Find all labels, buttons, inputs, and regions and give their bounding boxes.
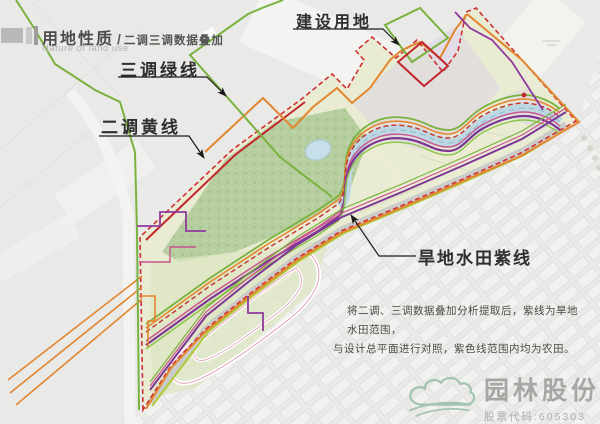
stock-code: 股票代码:605303 bbox=[484, 409, 600, 424]
annotation-line-1: 将二调、三调数据叠加分析提取后，紫线为旱地水田范围， bbox=[333, 302, 578, 340]
company-watermark: 园林股份 股票代码:605303 bbox=[404, 371, 600, 424]
callout-construction-label: 建设用地 bbox=[296, 8, 372, 32]
page-title-english: Nature of land use bbox=[42, 43, 129, 54]
plan-sheet: 用地性质/二调三调数据叠加 Nature of land use 三调绿线 二调… bbox=[0, 0, 600, 424]
red-dot-marker bbox=[522, 93, 527, 98]
callout-yellow-line-label: 二调黄线 bbox=[101, 113, 181, 138]
map-canvas bbox=[0, 0, 600, 424]
callout-green-line-label: 三调绿线 bbox=[120, 56, 200, 81]
title-deco-bar-2 bbox=[34, 26, 38, 45]
annotation-paragraph: 将二调、三调数据叠加分析提取后，紫线为旱地水田范围， 与设计总平面进行对照，紫色… bbox=[333, 302, 578, 359]
page-subtitle: 二调三调数据叠加 bbox=[124, 35, 224, 47]
callout-purple-line-label: 旱地水田紫线 bbox=[418, 244, 532, 269]
title-deco-bar-1 bbox=[26, 27, 32, 44]
title-deco-block bbox=[1, 28, 23, 43]
cloud-logo-icon bbox=[404, 375, 478, 421]
annotation-line-2: 与设计总平面进行对照，紫色线范围内均为农田。 bbox=[333, 340, 578, 359]
company-name: 园林股份 bbox=[484, 371, 600, 407]
